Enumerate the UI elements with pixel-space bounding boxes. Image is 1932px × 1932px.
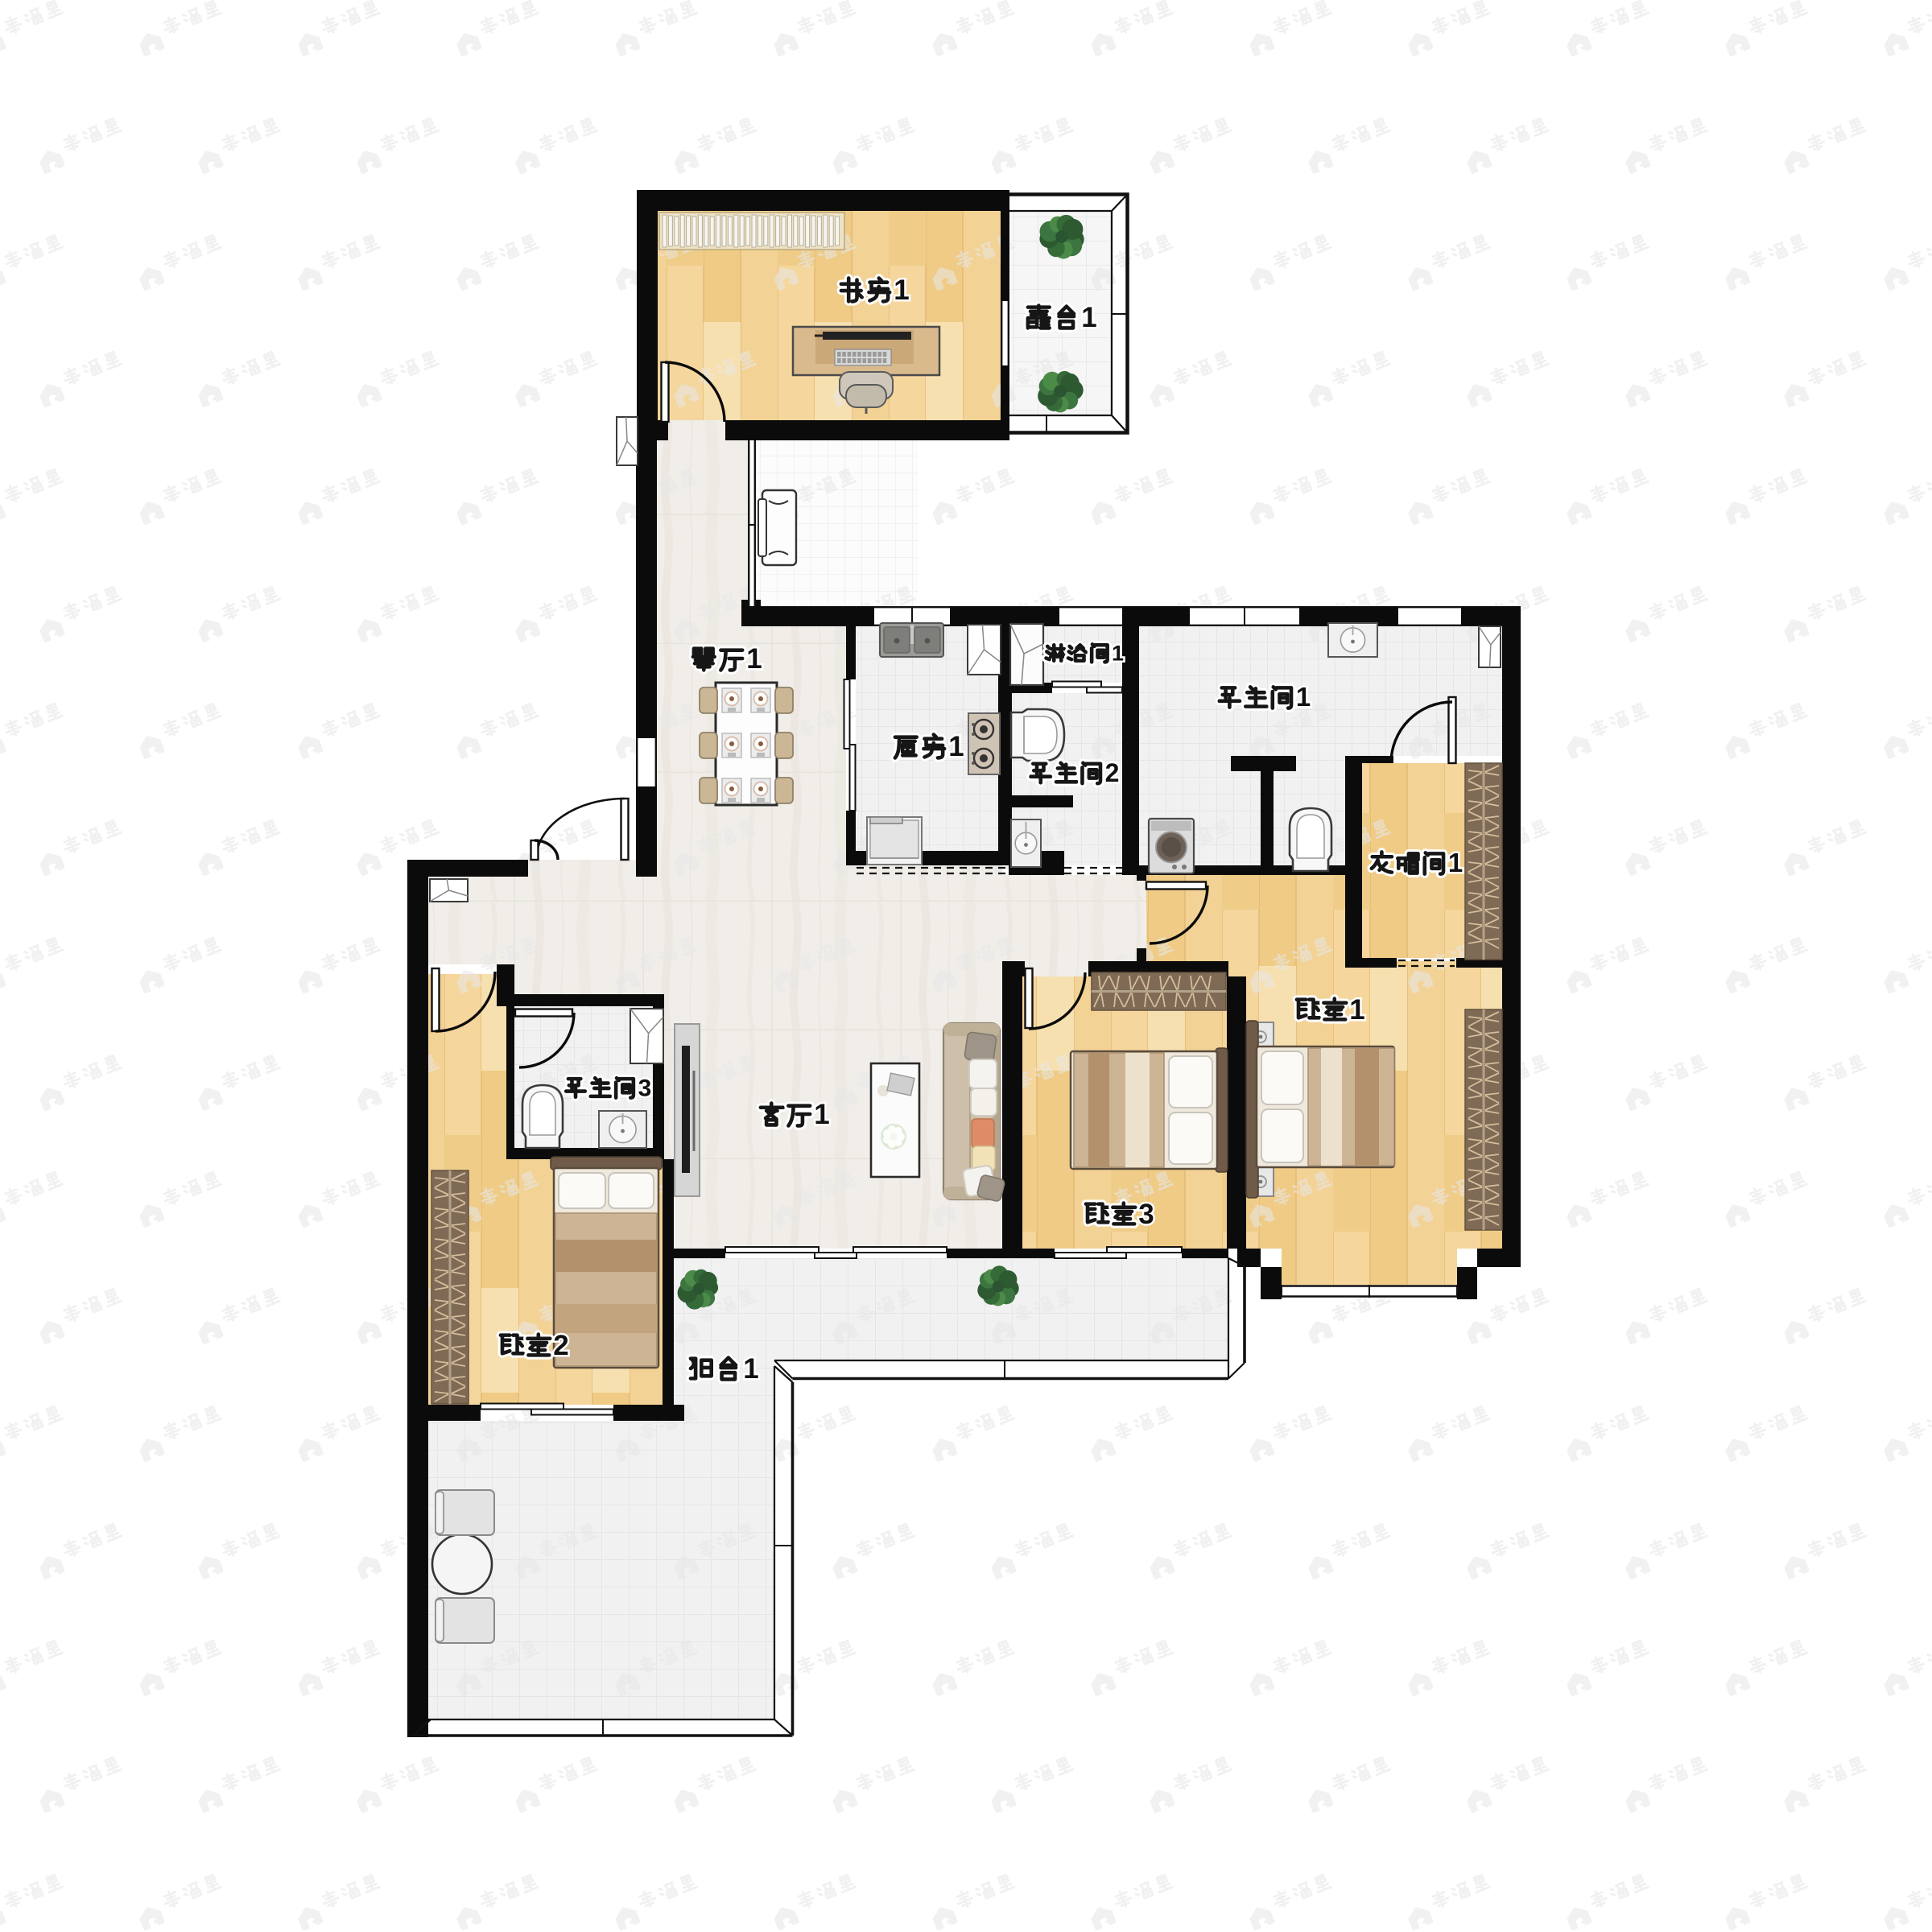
svg-text:1: 1 xyxy=(814,1099,829,1130)
svg-text:3: 3 xyxy=(638,1075,652,1101)
svg-text:1: 1 xyxy=(894,275,909,306)
svg-text:1: 1 xyxy=(1349,994,1364,1026)
svg-text:2: 2 xyxy=(1105,758,1120,787)
svg-text:3: 3 xyxy=(1138,1199,1154,1230)
svg-text:1: 1 xyxy=(743,1353,758,1385)
svg-text:1: 1 xyxy=(746,643,762,675)
svg-text:1: 1 xyxy=(1112,641,1124,665)
svg-text:1: 1 xyxy=(948,731,964,762)
svg-text:1: 1 xyxy=(1081,302,1096,333)
svg-text:2: 2 xyxy=(553,1330,568,1361)
svg-text:1: 1 xyxy=(1296,682,1311,712)
svg-text:1: 1 xyxy=(1448,848,1463,877)
